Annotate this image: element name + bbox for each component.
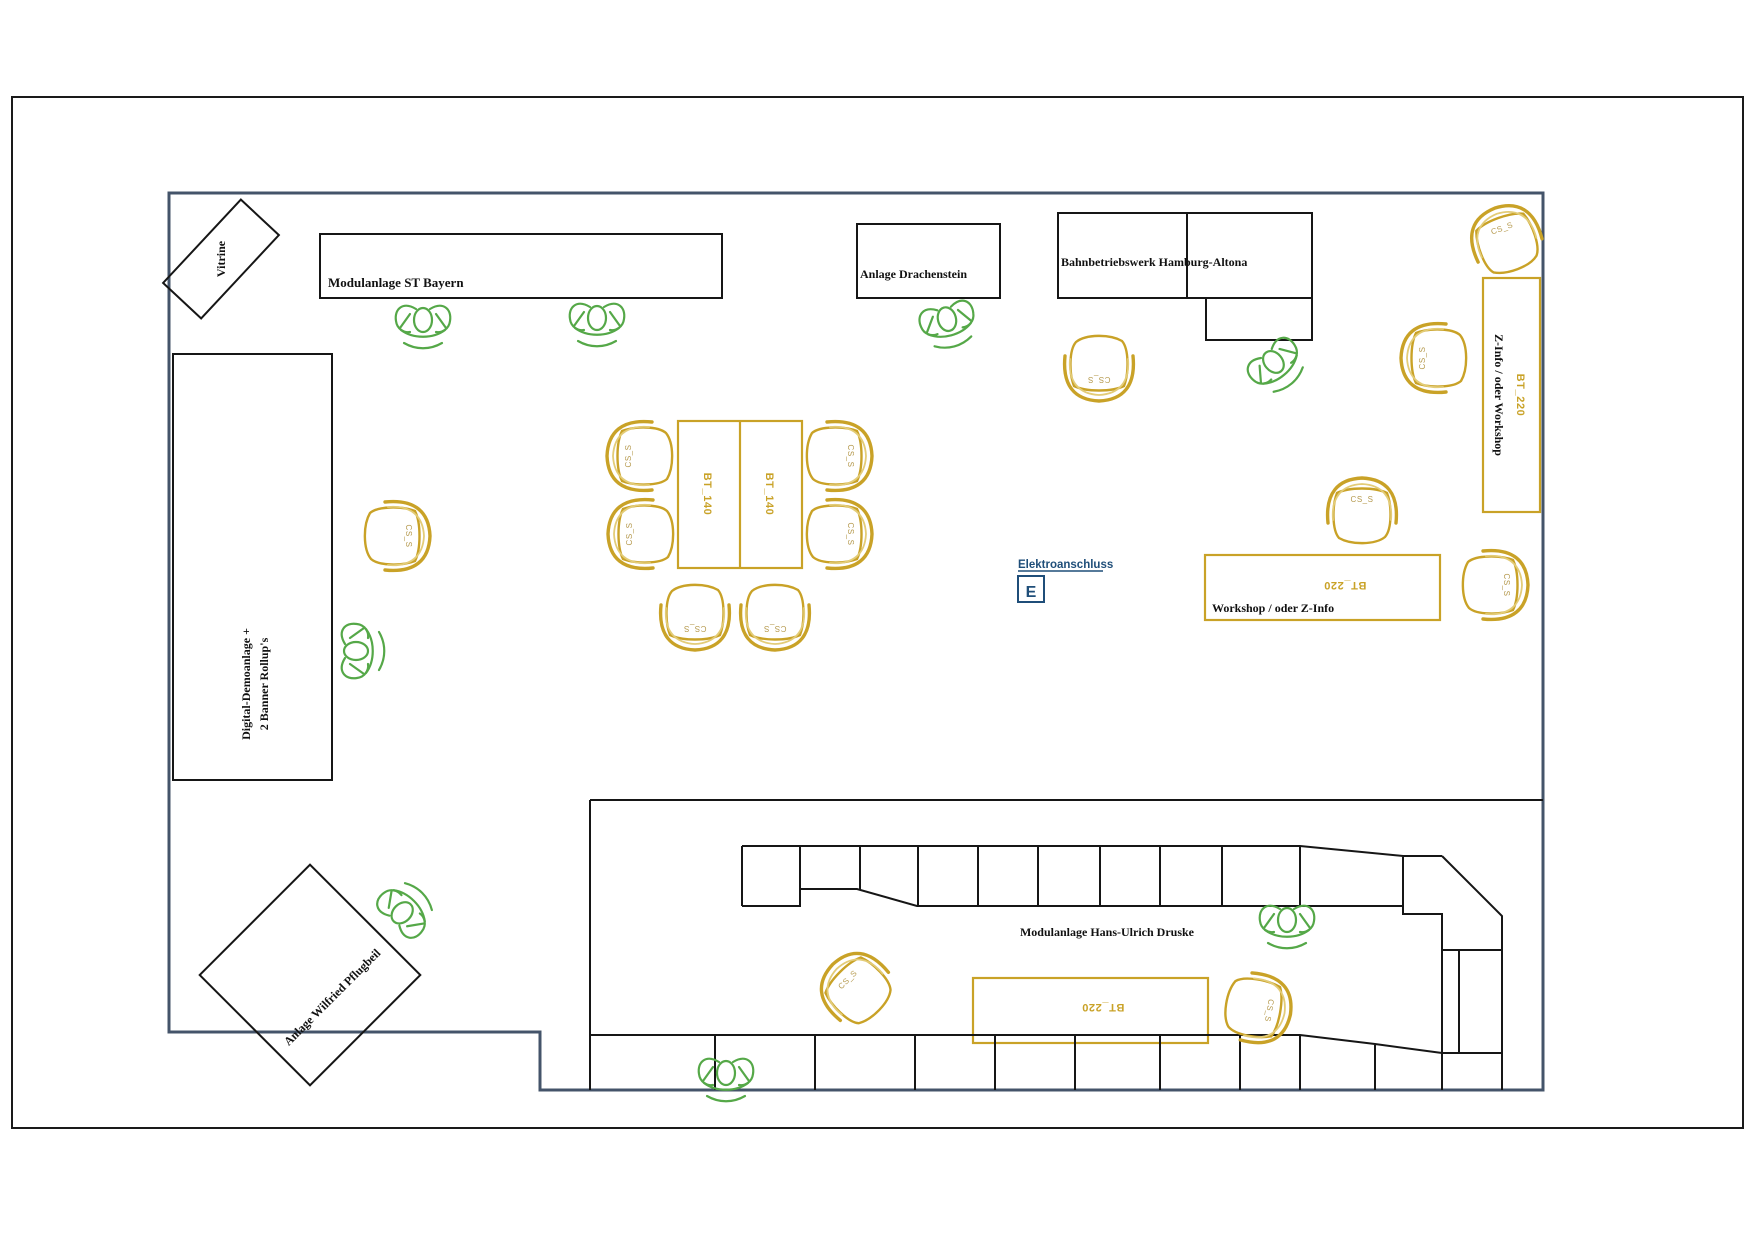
floor-plan-svg: Vitrine Modulanlage ST Bayern Anlage Dra… xyxy=(0,0,1754,1240)
chair-label: CS_S xyxy=(1263,998,1276,1022)
layout-drachenstein: Anlage Drachenstein xyxy=(857,224,1000,298)
chair-label: CS_S xyxy=(1502,574,1511,597)
chair: CS_S xyxy=(1065,336,1134,401)
layout-pflugbeil: Anlage Wilfried Pflugbeil xyxy=(200,865,421,1086)
persons xyxy=(342,298,1314,1101)
chair-label: CS_S xyxy=(764,624,787,633)
chair: CS_S xyxy=(608,500,673,569)
elektroanschluss-label: Elektroanschluss xyxy=(1018,559,1113,571)
chair: CS_S xyxy=(661,585,730,650)
bahnbetriebswerk-annex-rect xyxy=(1206,298,1312,340)
chair-label: CS_S xyxy=(404,525,413,548)
z-info-workshop-label: Z-Info / oder Workshop xyxy=(1492,334,1506,456)
chairs: CS_S CS_S CS_S CS_S CS_S CS_S CS_S CS_S … xyxy=(365,196,1549,1048)
table-bt140-label-left: BT_140 xyxy=(701,473,713,516)
person-icon xyxy=(699,1059,754,1101)
table-bt140-group: BT_140 BT_140 xyxy=(678,421,802,568)
table-bt220-vertical: Z-Info / oder Workshop BT_220 xyxy=(1483,278,1540,512)
chair-label: CS_S xyxy=(1490,220,1515,236)
electrical-connection: Elektroanschluss E xyxy=(1018,559,1113,602)
table-bt220-vertical-rect xyxy=(1483,278,1540,512)
person-icon xyxy=(373,874,442,943)
chair-label: CS_S xyxy=(846,523,855,546)
table-bt220-bottom: BT_220 xyxy=(973,978,1208,1043)
chair: CS_S xyxy=(808,940,903,1035)
table-bt220-workshop: BT_220 Workshop / oder Z-Info xyxy=(1205,555,1440,620)
digital-demo-label-1: Digital-Demoanlage + xyxy=(239,628,253,740)
electric-symbol: E xyxy=(1026,584,1037,601)
layout-st-bayern: Modulanlage ST Bayern xyxy=(320,234,722,298)
chair: CS_S xyxy=(1328,478,1397,543)
person-icon xyxy=(1243,334,1312,402)
person-icon xyxy=(570,304,625,346)
person-icon xyxy=(396,306,451,348)
chair: CS_S xyxy=(741,585,810,650)
layout-bahnbetriebswerk: Bahnbetriebswerk Hamburg-Altona xyxy=(1058,213,1312,340)
workshop-z-info-label: Workshop / oder Z-Info xyxy=(1212,601,1334,615)
bahnbetriebswerk-label: Bahnbetriebswerk Hamburg-Altona xyxy=(1061,255,1247,269)
st-bayern-label: Modulanlage ST Bayern xyxy=(328,275,464,290)
chair: CS_S xyxy=(807,422,872,491)
vitrine-case: Vitrine xyxy=(163,200,279,319)
digital-demo-label-2: 2 Banner Rollup's xyxy=(257,637,271,730)
chair: CS_S xyxy=(1401,324,1466,393)
chair-label: CS_S xyxy=(1418,347,1427,370)
druske-label: Modulanlage Hans-Ulrich Druske xyxy=(1020,925,1195,939)
chair-label: CS_S xyxy=(1088,375,1111,384)
druske-top-module-row xyxy=(742,846,1442,906)
chair: CS_S xyxy=(1220,969,1296,1048)
chair-label: CS_S xyxy=(625,523,634,546)
person-icon xyxy=(342,624,384,679)
druske-right-modules xyxy=(1403,856,1502,1090)
drachenstein-rect xyxy=(857,224,1000,298)
chair: CS_S xyxy=(607,422,672,491)
table-bt220-vertical-label: BT_220 xyxy=(1514,374,1526,417)
pflugbeil-rect xyxy=(200,865,421,1086)
table-bt140-label-right: BT_140 xyxy=(763,473,775,516)
table-bt220-workshop-bt-label: BT_220 xyxy=(1324,579,1367,591)
vitrine-label: Vitrine xyxy=(214,240,228,277)
person-icon xyxy=(917,298,981,353)
digital-demo-table: Digital-Demoanlage + 2 Banner Rollup's xyxy=(173,354,332,780)
person-icon xyxy=(1260,906,1315,948)
chair: CS_S xyxy=(807,500,872,569)
chair: CS_S xyxy=(1462,196,1549,281)
chair-label: CS_S xyxy=(684,624,707,633)
chair-label: CS_S xyxy=(1351,495,1374,504)
chair-label: CS_S xyxy=(624,445,633,468)
chair-label: CS_S xyxy=(846,445,855,468)
layout-druske: Modulanlage Hans-Ulrich Druske xyxy=(590,800,1543,1090)
chair: CS_S xyxy=(365,502,430,571)
drachenstein-label: Anlage Drachenstein xyxy=(860,267,967,281)
chair: CS_S xyxy=(1463,551,1528,620)
table-bt220-bottom-label: BT_220 xyxy=(1082,1001,1125,1013)
